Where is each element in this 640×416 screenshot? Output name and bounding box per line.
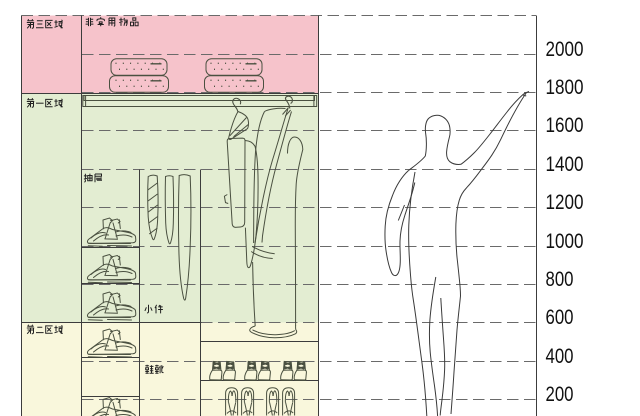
svg-text:1800: 1800: [546, 76, 584, 99]
svg-text:1000: 1000: [546, 230, 584, 253]
svg-text:200: 200: [546, 383, 574, 406]
svg-text:1200: 1200: [546, 191, 584, 214]
svg-text:1400: 1400: [546, 153, 584, 176]
svg-text:600: 600: [546, 306, 574, 329]
svg-text:400: 400: [546, 345, 574, 368]
svg-text:2000: 2000: [546, 38, 584, 61]
svg-text:800: 800: [546, 268, 574, 291]
svg-text:1600: 1600: [546, 114, 584, 137]
